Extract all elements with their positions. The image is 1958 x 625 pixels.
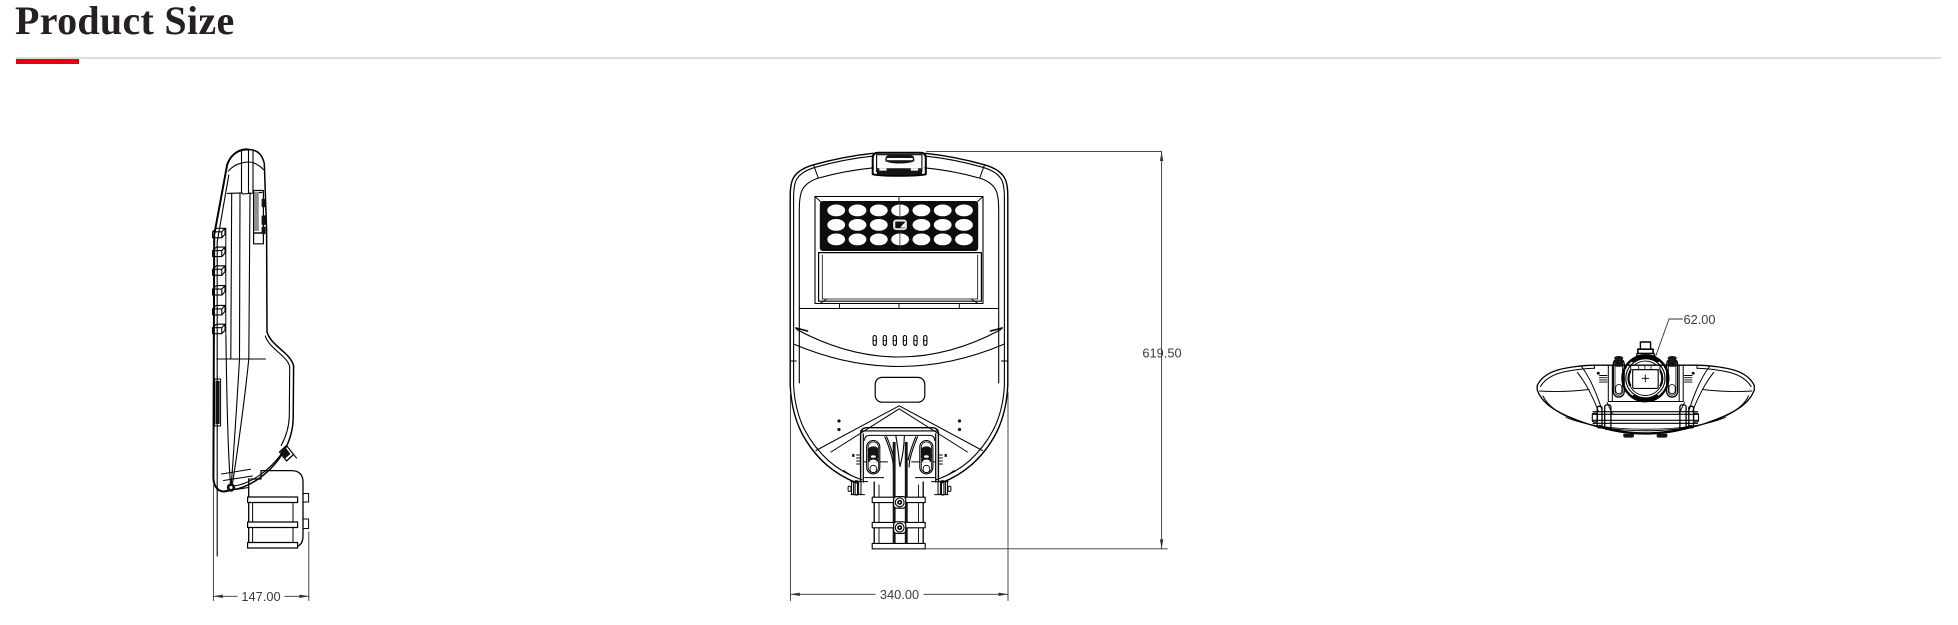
svg-text:62.00: 62.00 <box>1684 312 1716 327</box>
svg-text:340.00: 340.00 <box>880 587 919 602</box>
svg-text:619.50: 619.50 <box>1142 346 1181 361</box>
svg-text:147.00: 147.00 <box>241 589 280 604</box>
